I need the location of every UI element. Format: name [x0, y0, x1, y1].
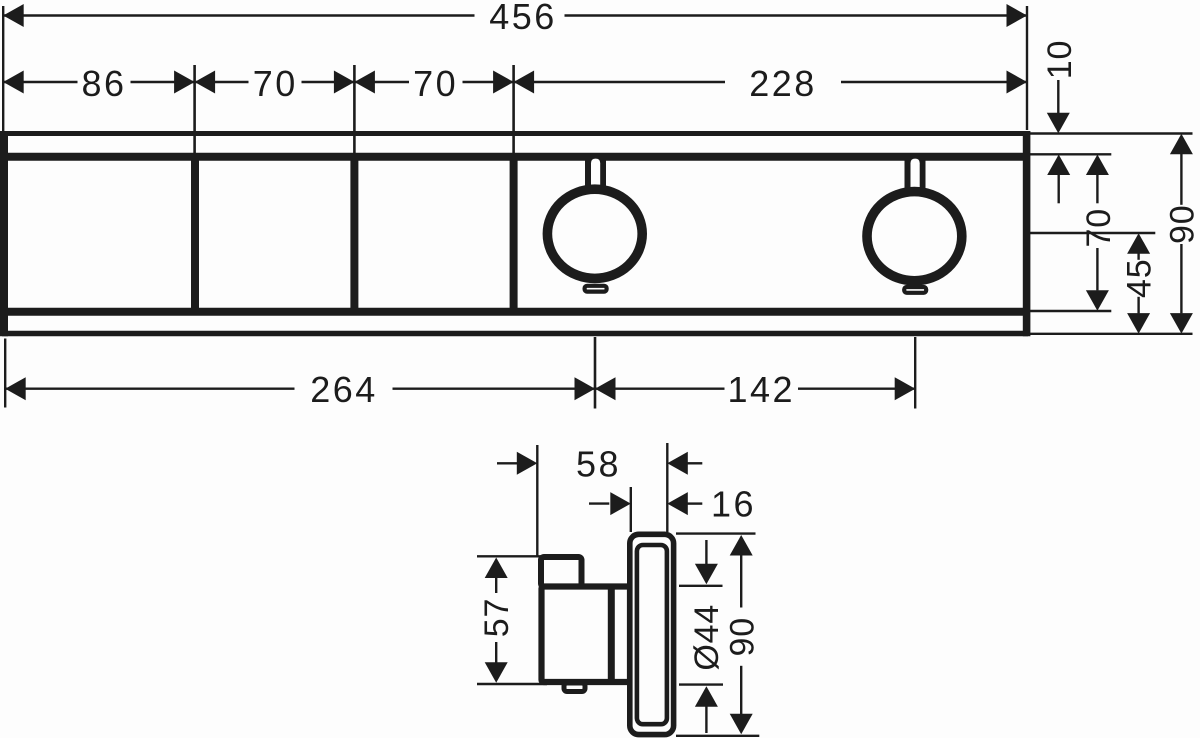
svg-text:86: 86 [81, 63, 126, 104]
svg-text:16: 16 [711, 484, 756, 525]
svg-text:45: 45 [1120, 259, 1158, 298]
svg-text:90: 90 [724, 617, 762, 656]
svg-text:57: 57 [478, 598, 516, 637]
svg-text:70: 70 [413, 63, 458, 104]
svg-text:10: 10 [1041, 40, 1079, 79]
svg-text:264: 264 [310, 369, 378, 410]
svg-text:142: 142 [728, 369, 796, 410]
svg-text:70: 70 [1080, 208, 1118, 247]
svg-text:70: 70 [253, 63, 298, 104]
svg-text:456: 456 [489, 0, 557, 37]
svg-text:228: 228 [749, 63, 817, 104]
svg-text:90: 90 [1164, 205, 1200, 244]
svg-text:58: 58 [576, 443, 621, 484]
svg-text:Ø44: Ø44 [688, 604, 726, 671]
